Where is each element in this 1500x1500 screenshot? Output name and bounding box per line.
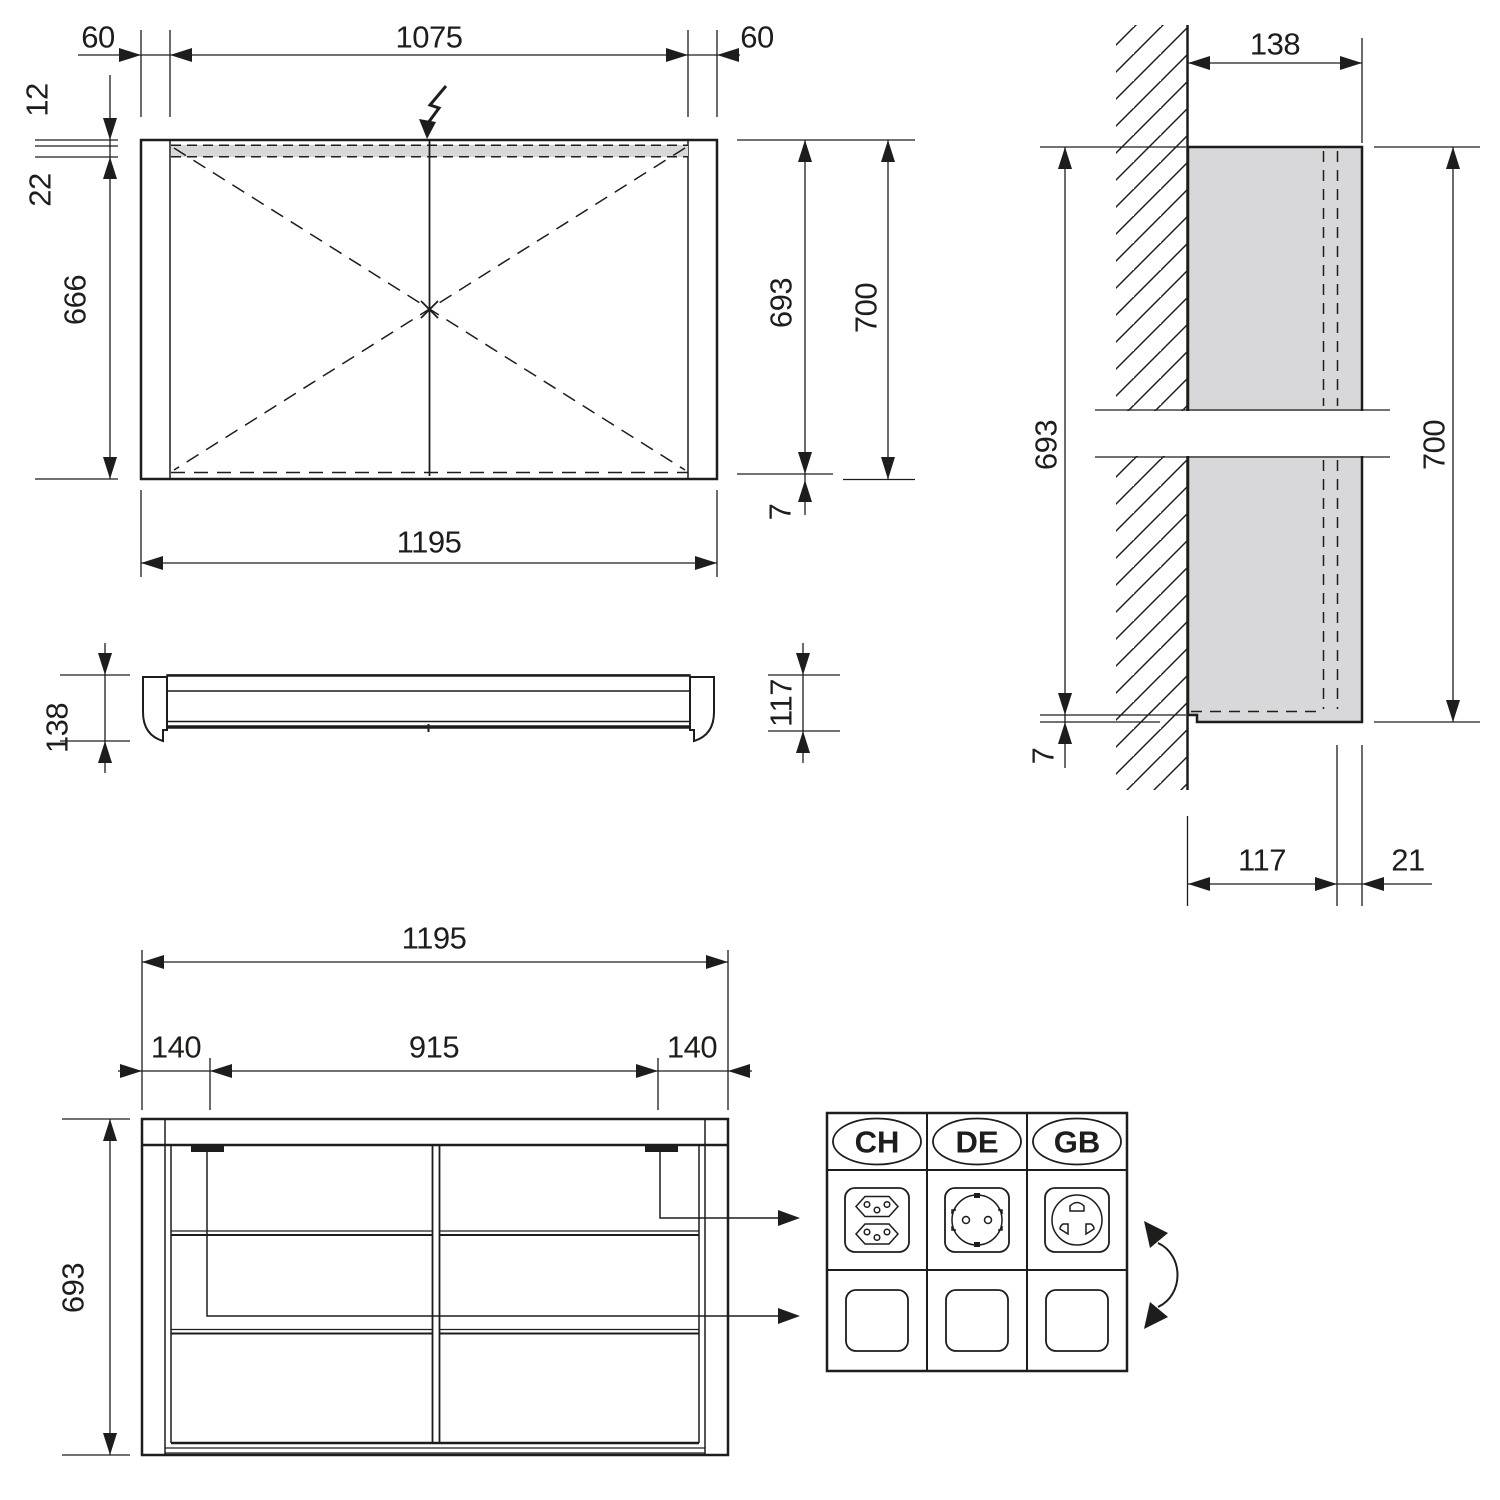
profile-body <box>167 675 690 728</box>
country-label-gb: GB <box>1054 1125 1101 1160</box>
dim-label-inner-height: 666 <box>58 275 93 325</box>
profile-right-cheek <box>690 677 714 741</box>
dim-label-front-right-margin: 60 <box>740 20 774 55</box>
break-band <box>1095 411 1390 456</box>
dim-label-section-depth: 138 <box>1250 27 1300 62</box>
dim-label-front-left-margin: 60 <box>81 20 115 55</box>
dim-label-section-body-depth: 117 <box>1238 843 1286 878</box>
dim-label-front-cutout: 1075 <box>396 20 463 55</box>
dim-label-front-carcass-height: 693 <box>764 278 799 328</box>
dim-label-profile-body-depth: 117 <box>764 679 799 727</box>
dim-label-socket-span: 915 <box>409 1030 459 1065</box>
dim-label-front-bottom-gap: 7 <box>763 504 798 521</box>
socket-position-mark <box>645 1146 678 1152</box>
swap-rotation-arrow-icon <box>1144 1221 1178 1329</box>
socket-options-table: CH DE GB <box>827 1113 1127 1371</box>
dim-label-front-overall-height: 700 <box>849 283 884 333</box>
interior-elevation-view <box>142 1119 728 1455</box>
dim-label-section-carcass-height: 693 <box>1029 420 1064 470</box>
dim-label-section-bottom-gap: 7 <box>1026 748 1061 765</box>
dim-label-profile-depth: 138 <box>40 703 75 753</box>
country-label-ch: CH <box>855 1125 900 1160</box>
technical-drawing-page: 60 1075 60 12 22 666 693 700 7 <box>0 0 1500 1500</box>
country-label-de: DE <box>955 1125 998 1160</box>
leader-arrow-top <box>778 1210 800 1226</box>
wall-section-view <box>1095 25 1390 790</box>
socket-position-mark <box>191 1146 224 1152</box>
dim-label-front-overall-width: 1195 <box>397 525 462 560</box>
dim-label-offset-right: 140 <box>667 1030 717 1065</box>
front-elevation-view <box>141 86 717 479</box>
wall-hatch <box>1116 25 1187 790</box>
interior-outline <box>142 1119 728 1455</box>
technical-drawing-canvas: 60 1075 60 12 22 666 693 700 7 <box>0 0 1500 1500</box>
dim-label-lamp-offset: 12 <box>20 83 55 116</box>
leader-arrow-bottom <box>778 1308 800 1324</box>
dim-label-interior-width: 1195 <box>402 921 467 956</box>
dim-label-section-overall-height: 700 <box>1417 420 1452 470</box>
top-profile-view <box>143 675 714 741</box>
dim-label-interior-height: 693 <box>56 1263 91 1313</box>
lightning-icon <box>419 86 446 139</box>
profile-left-cheek <box>143 677 167 741</box>
dim-label-section-door-thickness: 21 <box>1391 843 1424 878</box>
dim-label-offset-left: 140 <box>151 1030 201 1065</box>
dim-label-lamp-height: 22 <box>23 173 58 206</box>
